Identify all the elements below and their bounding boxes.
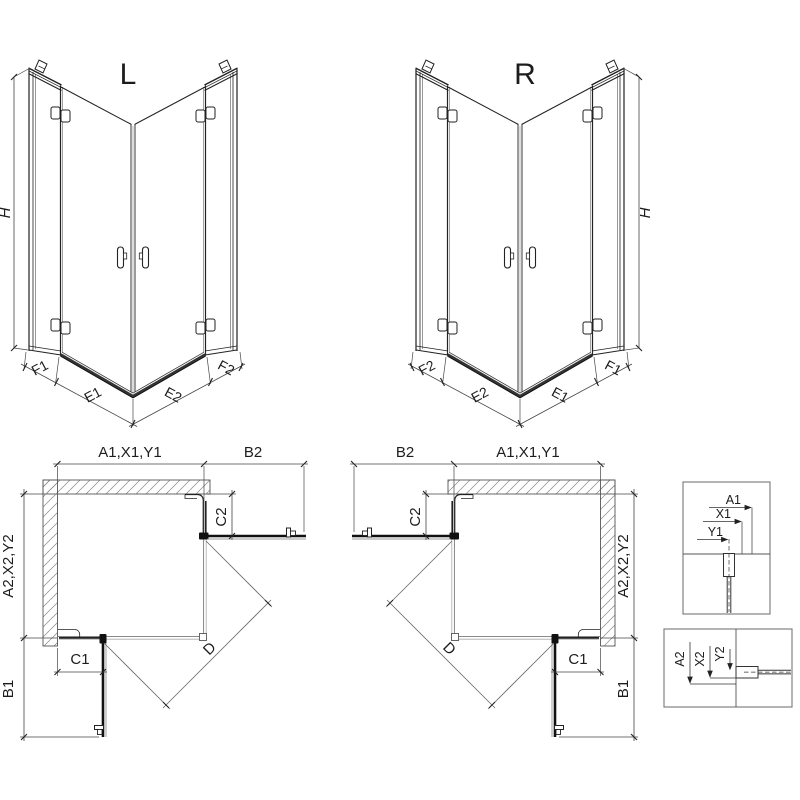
dim-label-c1-right: C1: [568, 651, 587, 668]
dim-label-f2: F2: [215, 357, 237, 379]
dim-label-a2x2y2-right: A2,X2,Y2: [615, 534, 632, 597]
dim-label-c2-right: C2: [407, 507, 424, 526]
dim-label-a1x1y1-left: A1,X1,Y1: [98, 444, 161, 461]
dim-label-b1-right: B1: [615, 680, 632, 698]
iso-view-left: L H F1 E1 E2 F2: [0, 58, 245, 428]
dim-label-f2-r: F2: [416, 357, 438, 379]
variant-label-right: R: [514, 58, 536, 91]
detail-label-x2: X2: [693, 651, 707, 666]
dim-label-e1-r: E1: [549, 384, 572, 406]
dim-label-b2-right: B2: [396, 444, 414, 461]
dim-label-c2-left: C2: [213, 507, 230, 526]
dim-label-e1: E1: [81, 383, 104, 405]
detail-label-y1: Y1: [708, 525, 723, 539]
dim-label-a1x1y1-right: A1,X1,Y1: [496, 444, 559, 461]
detail-box-wall-profile-top: A1 X1 Y1: [683, 482, 770, 614]
dim-label-a2x2y2-left: A2,X2,Y2: [0, 534, 17, 597]
dim-label-b1-left: B1: [0, 680, 17, 698]
dim-label-b2-left: B2: [244, 444, 262, 461]
detail-label-a2: A2: [673, 651, 687, 666]
detail-box-wall-profile-side: A2 X2 Y2: [664, 629, 792, 707]
dim-label-h-left: H: [0, 207, 14, 218]
dim-label-e2-r: E2: [468, 383, 491, 405]
dim-label-d-left: D: [200, 639, 220, 659]
wall-side-right-plan: [601, 480, 616, 646]
dim-label-h-right: H: [637, 207, 654, 218]
wall-top-left-plan: [43, 480, 210, 494]
detail-label-x1: X1: [716, 507, 731, 521]
detail-label-y2: Y2: [713, 646, 727, 661]
technical-drawing-page: L H F1 E1 E2 F2 R H F2 E2 E1 F1 A1,X1,Y1…: [0, 0, 800, 800]
wall-side-left-plan: [43, 480, 58, 646]
dim-label-e2: E2: [162, 384, 185, 406]
dim-label-f1: F1: [29, 357, 51, 379]
dim-label-c1-left: C1: [70, 651, 89, 668]
wall-top-right-plan: [448, 480, 615, 494]
variant-label-left: L: [120, 58, 137, 91]
iso-view-right: R H F2 E2 E1 F1: [408, 58, 654, 428]
shower-enclosure-drawing: L H F1 E1 E2 F2 R H F2 E2 E1 F1 A1,X1,Y1…: [0, 0, 800, 800]
detail-label-a1: A1: [726, 493, 741, 507]
dim-label-f1-r: F1: [602, 357, 624, 379]
